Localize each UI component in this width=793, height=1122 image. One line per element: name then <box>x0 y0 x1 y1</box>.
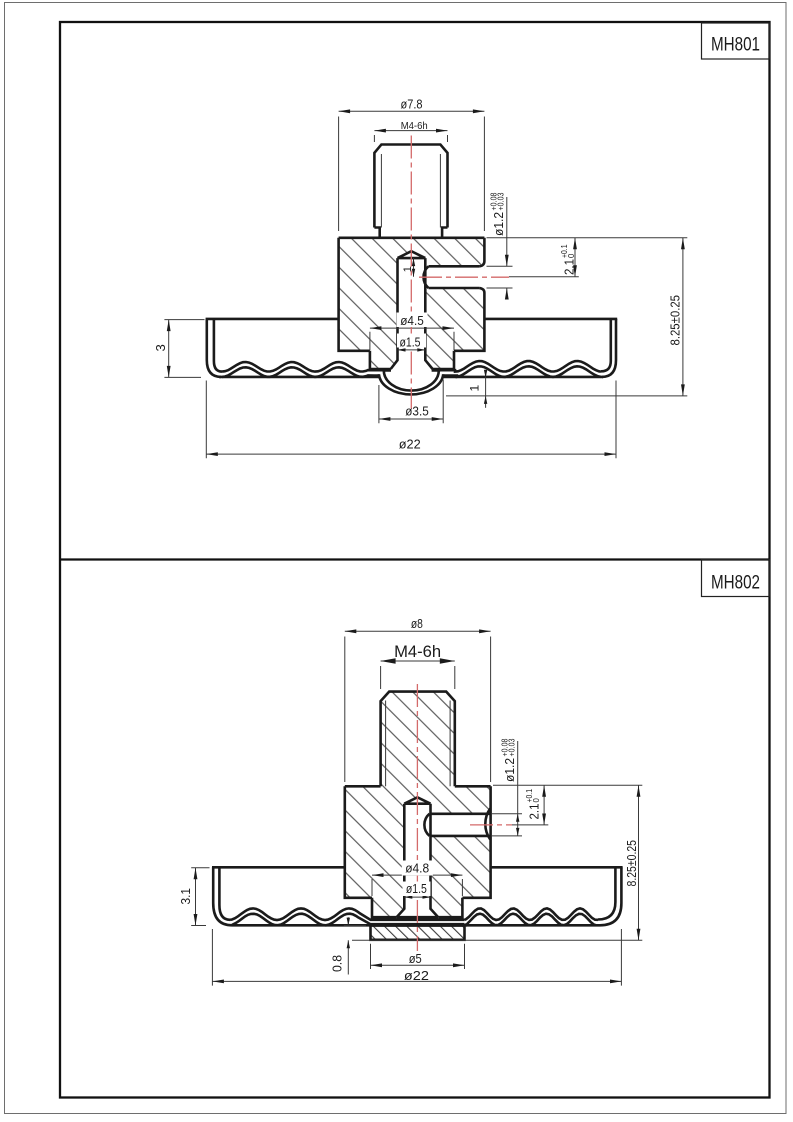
svg-text:MH801: MH801 <box>711 34 760 56</box>
svg-text:3: 3 <box>153 344 168 351</box>
svg-text:1: 1 <box>402 266 414 272</box>
svg-text:3.1: 3.1 <box>178 888 193 905</box>
svg-text:2.1: 2.1 <box>561 259 576 275</box>
svg-text:M4-6h: M4-6h <box>394 642 441 661</box>
svg-text:ø1.5: ø1.5 <box>406 881 427 896</box>
svg-text:ø3.5: ø3.5 <box>405 404 429 419</box>
svg-text:0.8: 0.8 <box>330 955 345 972</box>
svg-text:ø4.8: ø4.8 <box>405 861 429 876</box>
svg-text:ø1.5: ø1.5 <box>400 334 421 349</box>
svg-text:ø22: ø22 <box>404 968 429 983</box>
svg-text:M4-6h: M4-6h <box>401 120 428 132</box>
svg-text:2.1: 2.1 <box>527 804 542 820</box>
svg-text:8.25±0.25: 8.25±0.25 <box>624 840 639 887</box>
svg-text:+0.03: +0.03 <box>497 193 506 211</box>
svg-text:ø5: ø5 <box>409 951 422 966</box>
svg-text:ø1.2: ø1.2 <box>491 212 506 236</box>
svg-text:1: 1 <box>468 385 482 392</box>
svg-text:ø7.8: ø7.8 <box>401 96 423 111</box>
svg-text:8.25±0.25: 8.25±0.25 <box>668 295 683 346</box>
svg-text:ø1.2: ø1.2 <box>502 758 517 782</box>
svg-text:0: 0 <box>567 253 576 258</box>
svg-text:MH802: MH802 <box>711 572 760 594</box>
svg-text:ø22: ø22 <box>399 436 421 451</box>
svg-text:ø8: ø8 <box>411 616 423 631</box>
svg-text:0: 0 <box>532 798 541 803</box>
svg-text:ø4.5: ø4.5 <box>400 313 424 328</box>
svg-text:+0.03: +0.03 <box>508 739 517 757</box>
